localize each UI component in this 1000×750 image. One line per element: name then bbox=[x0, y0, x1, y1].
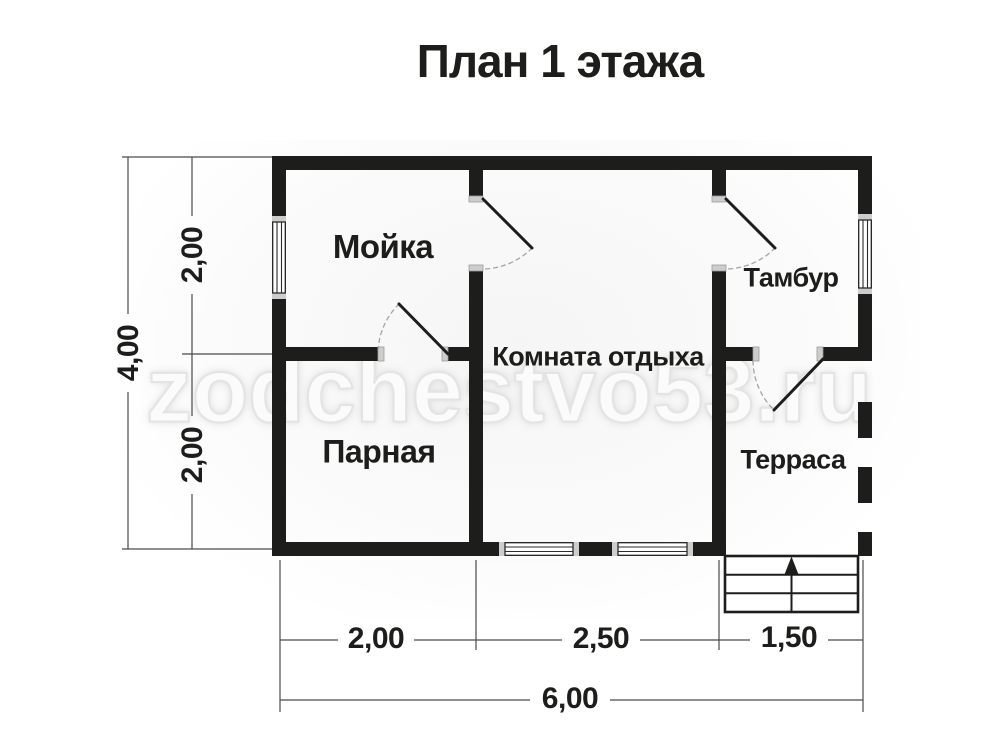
door-swing-arc bbox=[378, 304, 399, 354]
floor-plan-drawing bbox=[0, 0, 1000, 750]
jamb-cap bbox=[712, 265, 726, 271]
dimension-label-bottom-2: 2,50 bbox=[573, 622, 629, 656]
wall-washroom-steam-right bbox=[448, 347, 469, 361]
dimension-label-bottom-1: 2,00 bbox=[348, 622, 404, 656]
door-washroom-steam bbox=[378, 304, 448, 354]
jamb-cap bbox=[469, 265, 483, 271]
window-glass bbox=[859, 220, 872, 288]
door-washroom-lounge bbox=[483, 199, 532, 269]
room-label-lounge: Комната отдыха bbox=[492, 342, 704, 373]
door-leaf bbox=[399, 304, 448, 354]
window-cap bbox=[573, 542, 579, 556]
window-cap bbox=[858, 288, 872, 294]
terrace-dashed-wall bbox=[858, 402, 872, 556]
outer-wall-top bbox=[272, 156, 872, 170]
jamb-cap bbox=[378, 347, 384, 361]
dashed-wall-segment bbox=[858, 402, 872, 438]
jamb-cap bbox=[753, 347, 759, 361]
window-cap bbox=[858, 214, 872, 220]
wall-vestibule-terrace-left bbox=[726, 347, 753, 361]
dimension-label-left-top: 2,00 bbox=[176, 227, 210, 283]
window-cap bbox=[499, 542, 505, 556]
stairs bbox=[725, 556, 858, 612]
window-lounge-1 bbox=[499, 542, 579, 556]
wall-washroom-steam-left bbox=[286, 347, 378, 361]
window-cap bbox=[272, 293, 286, 299]
dimension-label-bottom-total: 6,00 bbox=[542, 682, 598, 716]
door-swing-arc bbox=[483, 248, 532, 269]
window-vestibule bbox=[858, 214, 872, 294]
window-cap bbox=[272, 216, 286, 222]
window-glass bbox=[505, 543, 573, 556]
dimension-label-bottom-3: 1,50 bbox=[761, 621, 817, 655]
door-leaf bbox=[726, 199, 775, 248]
wall-lounge-vestibule-lower bbox=[712, 271, 726, 556]
wall-washroom-lounge-lower bbox=[469, 271, 483, 542]
jamb-cap bbox=[712, 196, 726, 202]
room-label-washroom: Мойка bbox=[333, 228, 433, 266]
room-label-steam-room: Парная bbox=[322, 434, 435, 471]
window-glass bbox=[618, 543, 687, 556]
dashed-wall-segment bbox=[858, 532, 872, 556]
dimension-label-left-bottom: 2,00 bbox=[176, 427, 210, 483]
room-label-vestibule: Тамбур bbox=[744, 263, 839, 294]
window-cap bbox=[687, 542, 693, 556]
wall-washroom-lounge-upper bbox=[469, 170, 483, 196]
door-swing-arc bbox=[753, 361, 774, 410]
dashed-wall-segment bbox=[858, 467, 872, 503]
doors bbox=[378, 199, 823, 410]
door-leaf bbox=[774, 359, 823, 410]
dimension-lines bbox=[122, 157, 863, 712]
dimension-label-left-total: 4,00 bbox=[112, 325, 146, 381]
window-lounge-2 bbox=[612, 542, 693, 556]
jamb-cap bbox=[469, 196, 483, 202]
room-label-terrace: Терраса bbox=[740, 445, 845, 476]
door-leaf bbox=[483, 199, 532, 248]
window-glass bbox=[273, 222, 286, 293]
wall-lounge-vestibule-upper bbox=[712, 170, 726, 196]
door-lounge-vestibule bbox=[726, 199, 775, 269]
window-cap bbox=[612, 542, 618, 556]
floor-plan-canvas: План 1 этажа zodchestvo53.ru bbox=[0, 0, 1000, 750]
wall-vestibule-terrace-right bbox=[823, 347, 872, 361]
window-washroom bbox=[272, 216, 286, 299]
door-vestibule-terrace bbox=[753, 359, 823, 410]
